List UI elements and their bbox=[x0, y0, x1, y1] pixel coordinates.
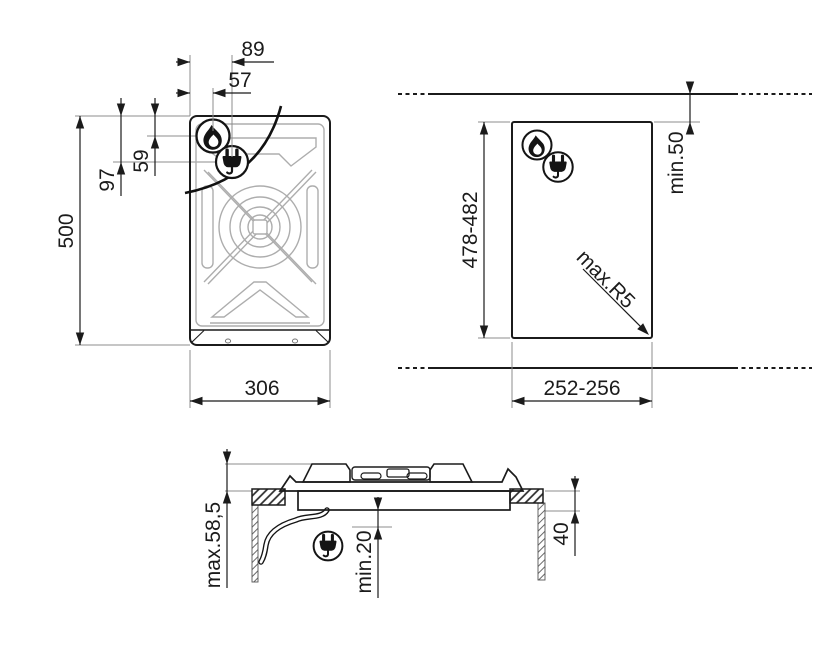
dim-40-label: 40 bbox=[550, 522, 573, 545]
dim-min50-label: min.50 bbox=[665, 131, 688, 194]
power-plug-icon-cutout bbox=[543, 152, 572, 181]
dim-59-label: 59 bbox=[130, 149, 153, 172]
dim-252-256-label: 252-256 bbox=[543, 377, 620, 400]
dim-89-label: 89 bbox=[241, 38, 264, 61]
dim-min20-label: min.20 bbox=[353, 530, 376, 593]
cabinet-left-wall bbox=[252, 505, 258, 582]
dim-57-label: 57 bbox=[228, 69, 251, 92]
dim-500-label: 500 bbox=[55, 213, 78, 248]
power-plug-icon-side bbox=[314, 532, 343, 561]
installation-diagram-page: 89 57 500 97 59 bbox=[0, 0, 814, 653]
dim-97-label: 97 bbox=[96, 168, 119, 191]
page-background bbox=[0, 0, 814, 653]
cabinet-right-wall bbox=[538, 503, 545, 580]
burner-center bbox=[253, 220, 267, 234]
dim-max-58-5-label: max.58,5 bbox=[202, 502, 225, 588]
dim-478-482-label: 478-482 bbox=[459, 191, 482, 268]
installation-diagram: 89 57 500 97 59 bbox=[0, 0, 814, 653]
dim-306-label: 306 bbox=[244, 377, 279, 400]
gas-burner-icon-cutout bbox=[522, 130, 551, 159]
